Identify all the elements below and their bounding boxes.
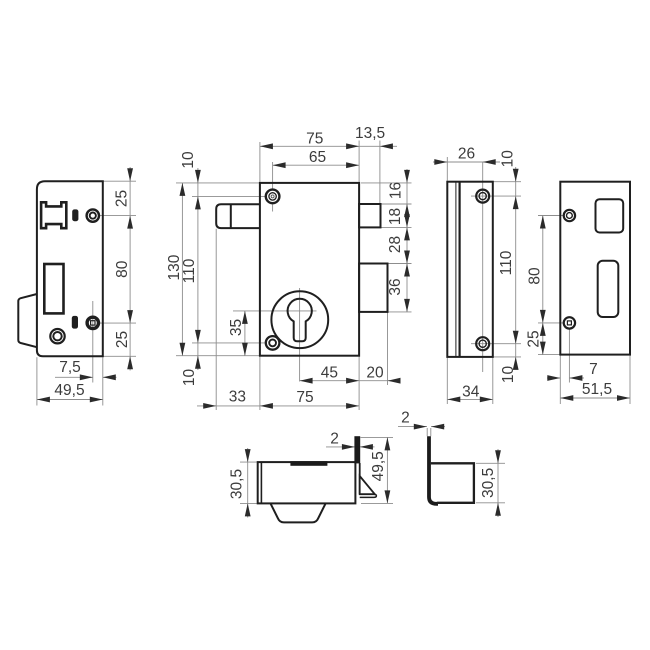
svg-text:110: 110 (181, 258, 198, 283)
svg-text:13,5: 13,5 (355, 125, 385, 142)
svg-text:28: 28 (387, 236, 404, 253)
svg-text:30,5: 30,5 (480, 468, 497, 498)
svg-text:10: 10 (500, 150, 517, 168)
svg-text:75: 75 (296, 389, 313, 406)
svg-text:33: 33 (229, 389, 246, 406)
svg-text:7: 7 (589, 361, 598, 378)
svg-text:36: 36 (387, 278, 404, 295)
svg-text:80: 80 (114, 260, 131, 278)
svg-text:34: 34 (462, 383, 480, 400)
svg-text:10: 10 (181, 369, 198, 387)
svg-text:49,5: 49,5 (370, 451, 387, 481)
svg-text:2: 2 (401, 410, 410, 427)
svg-text:45: 45 (321, 365, 338, 382)
svg-text:26: 26 (458, 146, 475, 163)
svg-text:18: 18 (387, 208, 404, 225)
svg-text:49,5: 49,5 (54, 382, 84, 399)
svg-text:75: 75 (306, 130, 323, 147)
svg-text:65: 65 (309, 149, 326, 166)
svg-text:10: 10 (500, 366, 517, 384)
svg-text:110: 110 (498, 250, 515, 275)
svg-text:2: 2 (330, 431, 339, 448)
svg-text:25: 25 (114, 331, 131, 348)
svg-text:35: 35 (228, 319, 245, 336)
svg-text:7,5: 7,5 (59, 359, 81, 376)
svg-text:25: 25 (526, 330, 543, 347)
svg-text:20: 20 (366, 365, 384, 382)
svg-text:80: 80 (526, 267, 543, 285)
svg-text:30,5: 30,5 (229, 469, 246, 499)
svg-text:10: 10 (180, 151, 197, 169)
svg-text:25: 25 (113, 190, 130, 207)
svg-text:51,5: 51,5 (582, 381, 612, 398)
svg-text:16: 16 (387, 182, 404, 199)
